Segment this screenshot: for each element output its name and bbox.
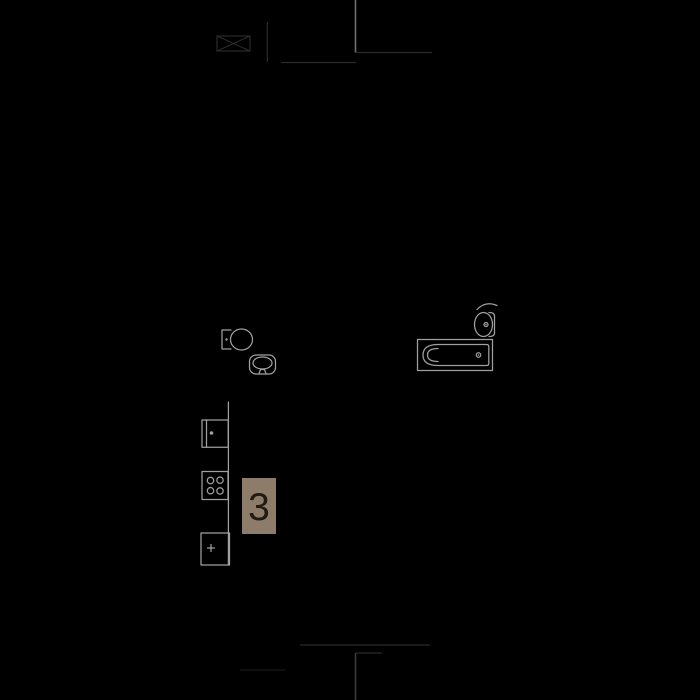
kitchen-sink-icon xyxy=(202,420,228,447)
floor-plan-canvas: 3 xyxy=(0,0,700,700)
wall-lines xyxy=(240,0,432,700)
bathtub-icon xyxy=(418,340,493,371)
cooktop-icon xyxy=(202,472,228,500)
bathroom-sink-icon xyxy=(475,304,498,337)
toilet-icon xyxy=(222,329,253,350)
wash-basin-icon xyxy=(250,355,276,374)
room-number-badge[interactable]: 3 xyxy=(242,478,276,534)
floor-plan-drawing xyxy=(0,0,700,700)
room-number: 3 xyxy=(248,488,270,527)
window-symbol xyxy=(217,36,250,51)
refrigerator-icon xyxy=(201,533,230,565)
